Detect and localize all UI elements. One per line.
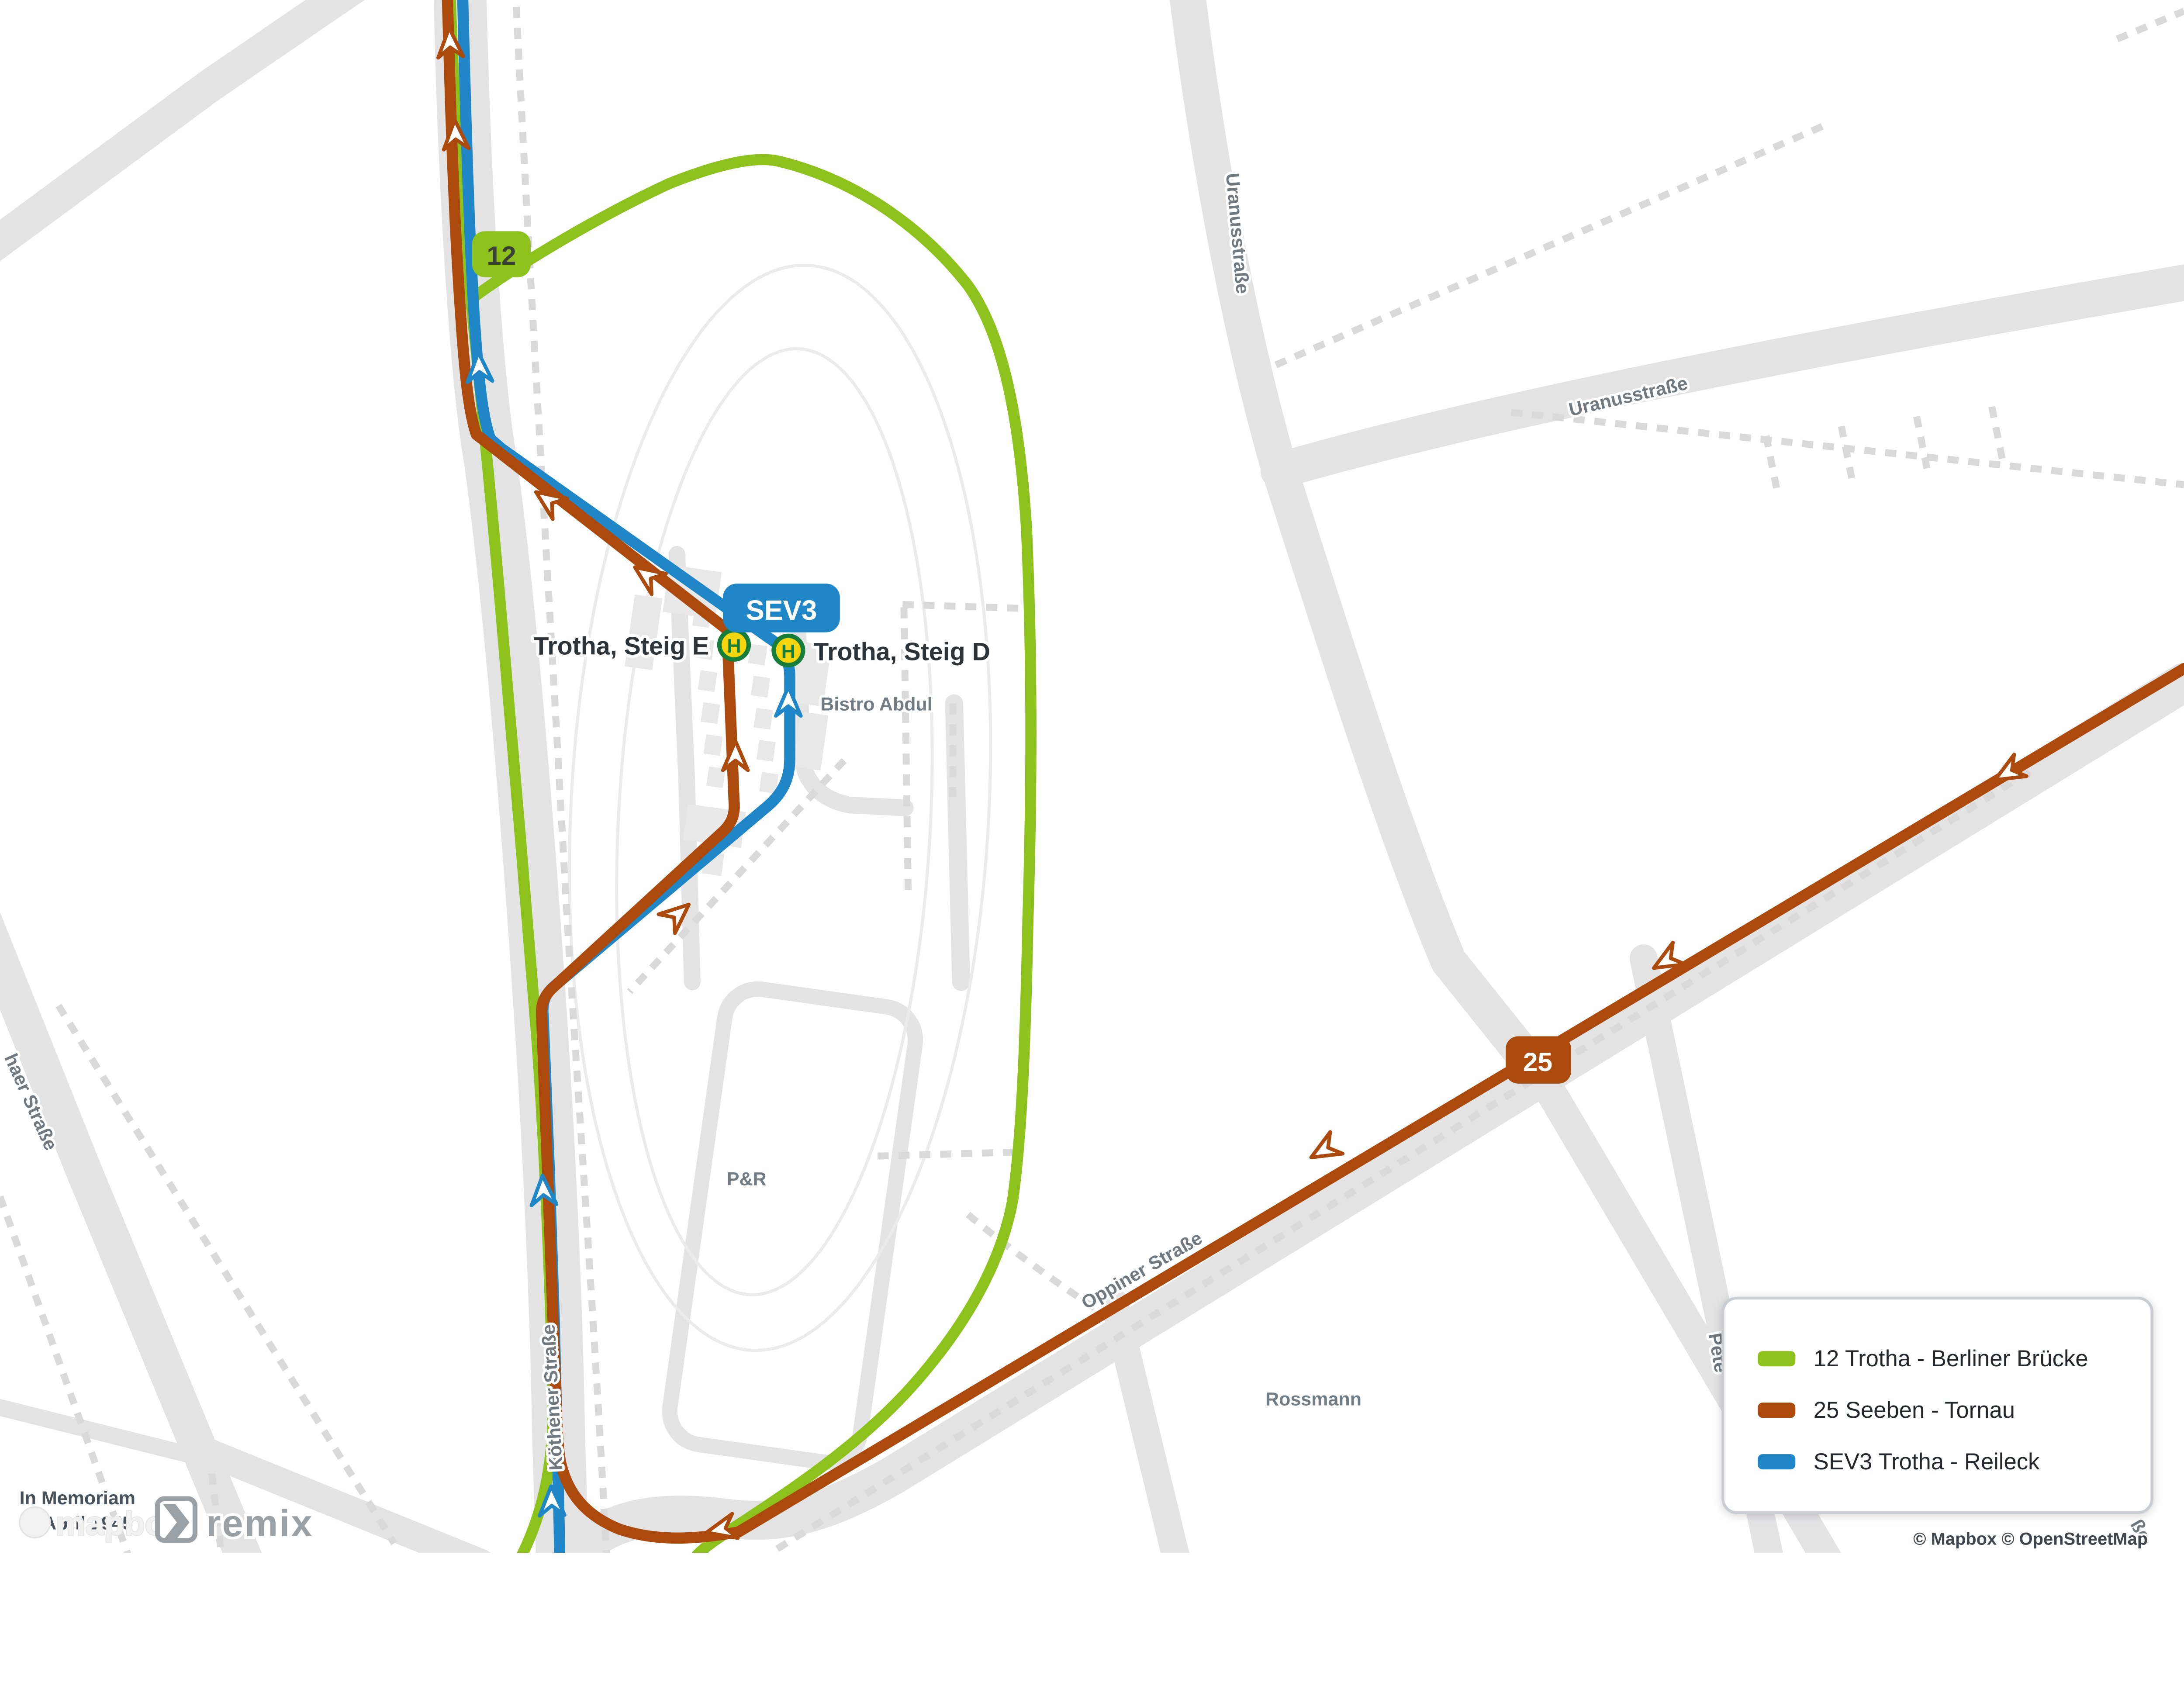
legend-item-route-25: 25 Seeben - Tornau xyxy=(1814,1397,2015,1423)
badge-12-text: 12 xyxy=(487,241,516,270)
remix-logo-icon xyxy=(157,1499,195,1541)
legend-chip-route-sev3 xyxy=(1758,1454,1795,1469)
road-uranusstrasse-vertical xyxy=(1185,0,1544,1079)
legend-chip-route-12 xyxy=(1758,1351,1795,1366)
road-uranusstrasse-horizontal xyxy=(1279,283,2184,470)
map-canvas[interactable]: Uranusstraße Uranusstraße Köthener Straß… xyxy=(0,0,2184,1553)
map-stage: Uranusstraße Uranusstraße Köthener Straß… xyxy=(0,0,2184,1553)
h-stop-letter-d: H xyxy=(781,641,795,663)
label-stop-steig-d: Trotha, Steig D xyxy=(813,638,990,666)
direction-arrow-icon xyxy=(1305,1132,1343,1168)
label-stop-steig-e: Trotha, Steig E xyxy=(533,632,709,660)
label-rossmann: Rossmann xyxy=(1265,1389,1362,1410)
legend-item-route-12: 12 Trotha - Berliner Brücke xyxy=(1814,1346,2088,1372)
mapbox-logo-icon xyxy=(20,1507,50,1538)
road-park-ride-loop xyxy=(665,985,919,1466)
racetrack-outlines xyxy=(543,255,1017,1361)
badge-25-text: 25 xyxy=(1523,1047,1552,1077)
label-bistro-abdul: Bistro Abdul xyxy=(820,694,933,715)
legend-chip-route-25 xyxy=(1758,1403,1795,1418)
legend: 12 Trotha - Berliner Brücke 25 Seeben - … xyxy=(1723,1298,2152,1513)
map-attribution[interactable]: © Mapbox © OpenStreetMap xyxy=(1913,1529,2148,1548)
badge-sev3-text: SEV3 xyxy=(746,594,817,626)
remix-wordmark: remix xyxy=(206,1503,314,1544)
label-park-and-ride: P&R xyxy=(727,1169,767,1190)
legend-item-route-sev3: SEV3 Trotha - Reileck xyxy=(1814,1449,2040,1475)
road-top-left-diagonal xyxy=(0,0,359,251)
h-stop-letter-e: H xyxy=(727,636,741,657)
